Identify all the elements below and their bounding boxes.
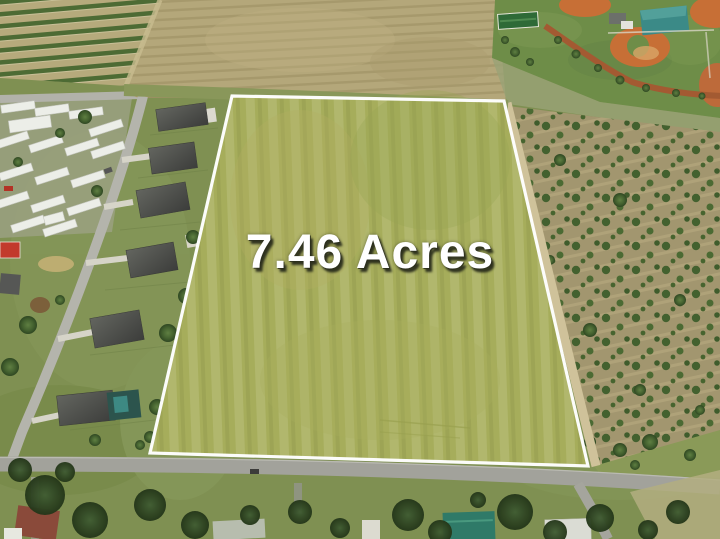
dirt-patch — [30, 297, 50, 313]
car-on-road — [250, 469, 259, 474]
acreage-label: 7.46 Acres — [205, 227, 535, 280]
white-pad — [362, 520, 380, 539]
dirt-patch — [38, 256, 74, 272]
white-shed — [4, 528, 22, 539]
parked-car — [4, 186, 13, 191]
top-road — [0, 95, 140, 99]
park-shed — [498, 12, 539, 30]
house-partial — [0, 273, 21, 295]
park-building — [621, 21, 633, 29]
red-shed — [0, 242, 20, 258]
aerial-listing-photo: 7.46 Acres — [0, 0, 720, 539]
pool-enclosure — [107, 389, 142, 420]
sage-roof-house — [213, 519, 266, 539]
